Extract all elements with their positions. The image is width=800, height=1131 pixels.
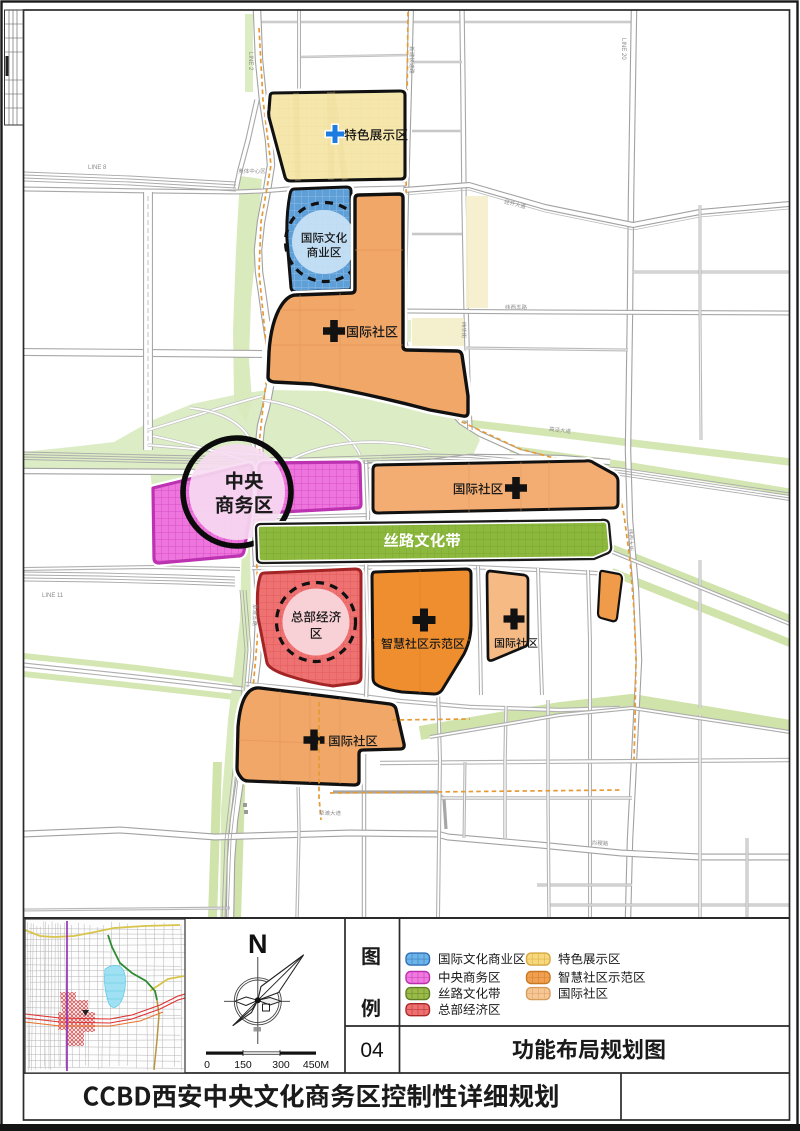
svg-text:150: 150 <box>234 1059 252 1071</box>
svg-text:LINE 8: LINE 8 <box>88 165 107 171</box>
svg-text:450M: 450M <box>303 1059 329 1071</box>
svg-text:04: 04 <box>360 1039 384 1062</box>
svg-text:300: 300 <box>272 1059 290 1071</box>
svg-text:LINE 11: LINE 11 <box>42 593 64 599</box>
svg-text:N: N <box>248 929 268 959</box>
svg-text:0: 0 <box>204 1059 210 1071</box>
svg-text:LINE 20: LINE 20 <box>620 38 626 60</box>
svg-text:LINE 2: LINE 2 <box>247 52 253 71</box>
